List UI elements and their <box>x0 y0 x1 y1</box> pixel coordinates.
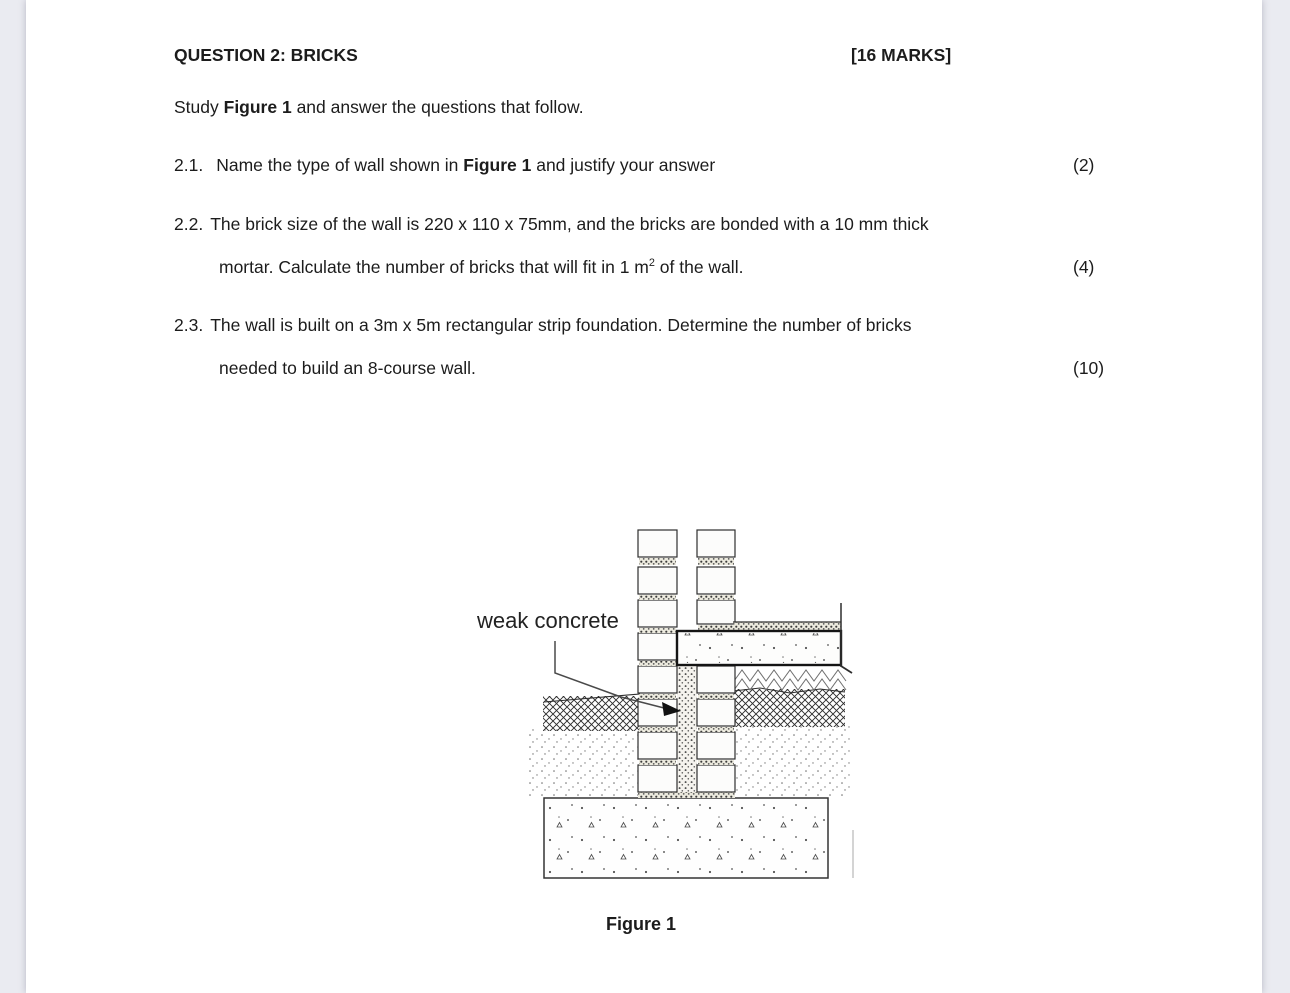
floor-slab <box>677 631 841 665</box>
question-title: QUESTION 2: BRICKS <box>174 44 358 66</box>
q21-pre: Name the type of wall shown in <box>216 155 463 175</box>
q22-line2-post: of the wall. <box>655 257 744 277</box>
question-2-3-marks: (10) <box>1073 357 1104 379</box>
question-2-2-number: 2.2. <box>174 213 203 235</box>
figure-caption: Figure 1 <box>606 914 676 935</box>
strip-foundation <box>544 798 828 878</box>
q22-line2-pre: mortar. Calculate the number of bricks t… <box>219 257 649 277</box>
question-2-2-line2: mortar. Calculate the number of bricks t… <box>219 256 743 278</box>
question-2-3-line1: 2.3.The wall is built on a 3m x 5m recta… <box>174 314 912 336</box>
insulation-zigzag <box>734 670 846 690</box>
question-2-1-number: 2.1. <box>174 154 203 176</box>
instruction-line: Study Figure 1 and answer the questions … <box>174 96 584 118</box>
question-2-3-number: 2.3. <box>174 314 203 336</box>
ground-hatch-right <box>733 688 845 727</box>
question-2-1-line1: 2.1.Name the type of wall shown in Figur… <box>174 154 715 176</box>
q21-post: and justify your answer <box>531 155 715 175</box>
q22-line1-text: The brick size of the wall is 220 x 110 … <box>210 214 928 234</box>
total-marks: [16 MARKS] <box>851 44 951 66</box>
cavity-wall-foundation-diagram <box>470 515 870 960</box>
instruction-figure-ref: Figure 1 <box>224 97 292 117</box>
question-2-2-line1: 2.2.The brick size of the wall is 220 x … <box>174 213 929 235</box>
soil-stipple-left <box>529 729 640 798</box>
weak-concrete-label: weak concrete <box>477 608 619 634</box>
instruction-post: and answer the questions that follow. <box>292 97 584 117</box>
q21-figure-ref: Figure 1 <box>463 155 531 175</box>
floor-screed <box>733 622 841 631</box>
ground-hatch-left <box>543 694 640 731</box>
instruction-pre: Study <box>174 97 224 117</box>
soil-stipple-right <box>735 726 851 798</box>
question-2-3-line2: needed to build an 8-course wall. <box>219 357 476 379</box>
document-page-view: { "header": { "title": "QUESTION 2: BRIC… <box>0 0 1290 993</box>
q23-line1-text: The wall is built on a 3m x 5m rectangul… <box>210 315 911 335</box>
question-2-1-marks: (2) <box>1073 154 1094 176</box>
question-2-2-marks: (4) <box>1073 256 1094 278</box>
outer-brick-leaf <box>638 530 677 792</box>
